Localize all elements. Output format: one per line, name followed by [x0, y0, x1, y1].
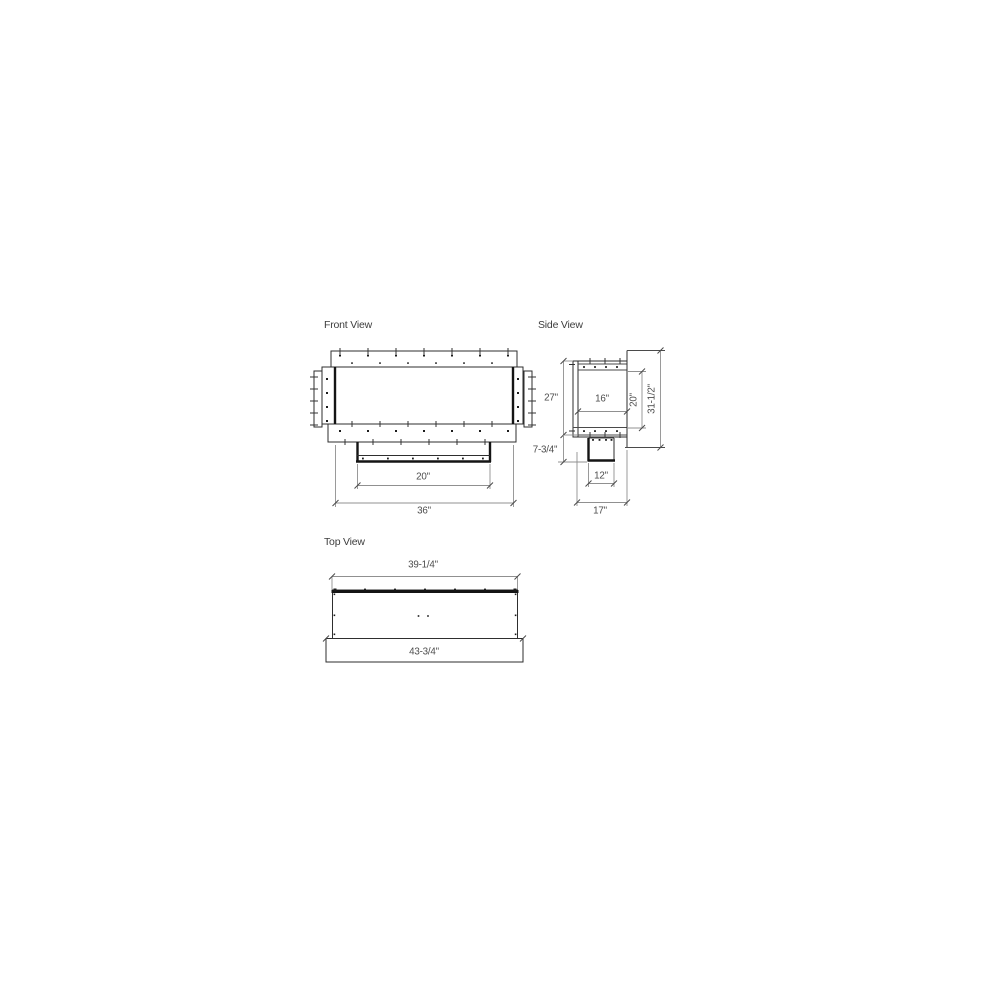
top-view-title: Top View	[324, 536, 365, 548]
front-opening-width-dim: 20"	[416, 472, 430, 483]
front-view-drawing	[310, 348, 536, 507]
top-body-width-dim: 39-1/4"	[408, 560, 438, 571]
dimension-linework	[0, 0, 1000, 1000]
spec-sheet-drawing: Front View Side View Top View 20" 36" 27…	[0, 0, 1000, 1000]
side-opening-height-dim: 20"	[629, 393, 640, 407]
side-overall-height-dim: 31-1/2"	[647, 384, 658, 414]
front-view-title: Front View	[324, 319, 372, 331]
top-overall-width-dim: 43-3/4"	[409, 647, 439, 658]
side-interior-depth-dim: 16"	[595, 394, 609, 405]
side-view-drawing	[558, 348, 665, 507]
side-base-height-dim: 7-3/4"	[533, 445, 558, 456]
front-overall-width-dim: 36"	[417, 506, 431, 517]
side-duct-depth-dim: 12"	[594, 471, 608, 482]
side-overall-depth-dim: 17"	[593, 506, 607, 517]
side-firebox-height-dim: 27"	[544, 393, 558, 404]
side-view-title: Side View	[538, 319, 583, 331]
